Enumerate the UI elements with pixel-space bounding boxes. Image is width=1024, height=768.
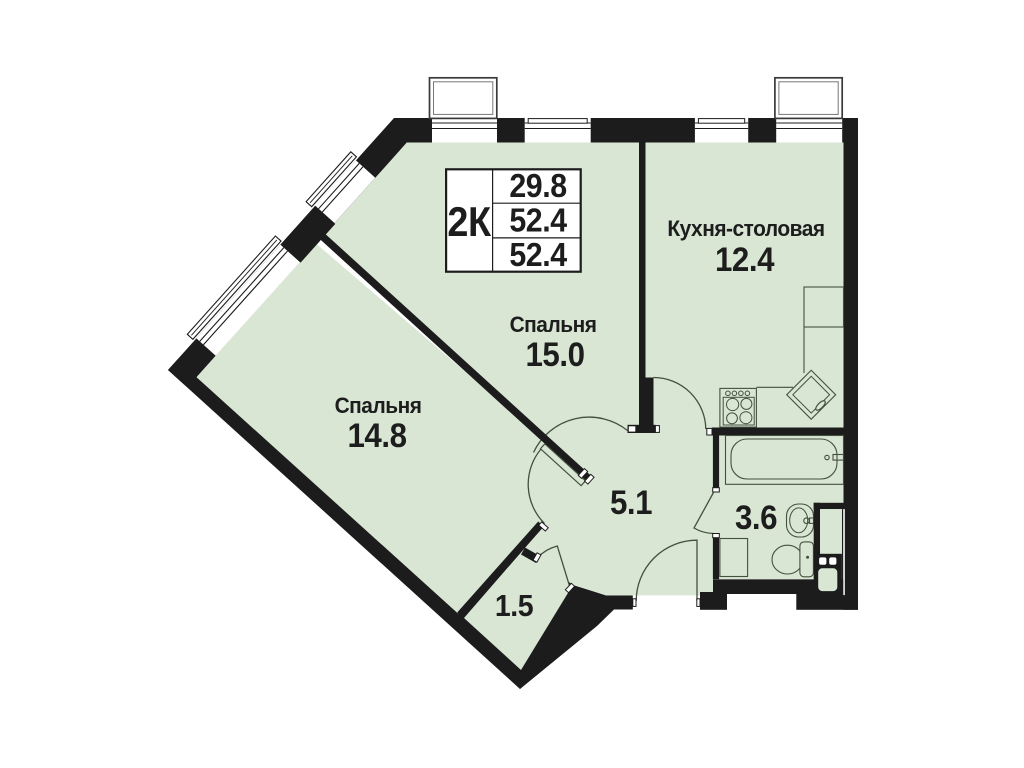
svg-text:52.4: 52.4 [509, 236, 567, 273]
svg-text:14.8: 14.8 [347, 416, 406, 455]
svg-text:Кухня-столовая: Кухня-столовая [667, 217, 824, 242]
svg-text:Спальня: Спальня [510, 313, 597, 338]
svg-text:52.4: 52.4 [509, 201, 567, 238]
svg-text:29.8: 29.8 [509, 167, 566, 204]
svg-text:15.0: 15.0 [525, 335, 584, 374]
svg-text:2К: 2К [447, 199, 491, 245]
svg-text:3.6: 3.6 [735, 498, 777, 537]
svg-text:5.1: 5.1 [610, 483, 652, 522]
svg-text:1.5: 1.5 [495, 589, 533, 623]
svg-text:Спальня: Спальня [335, 394, 422, 419]
svg-text:12.4: 12.4 [715, 240, 774, 279]
